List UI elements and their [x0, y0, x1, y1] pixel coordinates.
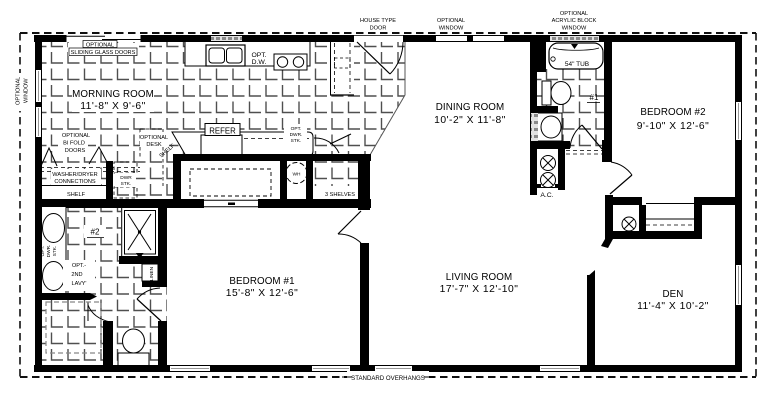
svg-text:OPT.-: OPT.- — [72, 263, 86, 269]
svg-text:LIVING ROOM: LIVING ROOM — [446, 272, 512, 283]
svg-text:10'-2" X 11'-8": 10'-2" X 11'-8" — [434, 115, 506, 126]
svg-text:WINDOW: WINDOW — [24, 78, 30, 103]
svg-text:DINING ROOM: DINING ROOM — [436, 102, 505, 113]
svg-text:WASHER/DRYER: WASHER/DRYER — [52, 172, 97, 178]
svg-text:MORNING ROOM: MORNING ROOM — [72, 89, 154, 100]
svg-text:DESK: DESK — [146, 142, 162, 148]
svg-text:SHELF: SHELF — [67, 192, 86, 198]
svg-text:WH: WH — [293, 172, 302, 178]
svg-text:OPTIONAL: OPTIONAL — [16, 77, 22, 105]
svg-text:17'-7" X 12'-10": 17'-7" X 12'-10" — [440, 284, 519, 295]
svg-text:CONNECTIONS: CONNECTIONS — [54, 179, 96, 185]
svg-text:LINEN: LINEN — [149, 266, 155, 281]
svg-text:WINDOW: WINDOW — [439, 26, 464, 32]
svg-text:#1: #1 — [590, 93, 599, 102]
svg-text:WINDOW: WINDOW — [562, 26, 587, 32]
svg-text:DOOR: DOOR — [370, 26, 387, 32]
svg-text:#2: #2 — [91, 228, 100, 237]
svg-text:15'-8" X 12'-6": 15'-8" X 12'-6" — [226, 288, 299, 299]
svg-text:OPTIONAL: OPTIONAL — [86, 43, 114, 49]
svg-text:OPTIONAL: OPTIONAL — [62, 133, 90, 139]
svg-text:DOORS: DOORS — [65, 148, 86, 154]
svg-text:54" TUB: 54" TUB — [565, 61, 589, 68]
svg-text:HOUSE TYPE: HOUSE TYPE — [360, 18, 396, 24]
svg-text:BEDROOM #2: BEDROOM #2 — [640, 107, 705, 118]
svg-text:OPTIONAL: OPTIONAL — [140, 135, 168, 141]
svg-text:OPTIONAL: OPTIONAL — [560, 11, 588, 17]
svg-text:11'-8" X 9'-6": 11'-8" X 9'-6" — [80, 101, 146, 112]
svg-text:OPT.: OPT. — [251, 52, 266, 59]
svg-text:A.C.: A.C. — [540, 192, 553, 199]
svg-text:11'-4" X 10'-2": 11'-4" X 10'-2" — [637, 301, 709, 312]
svg-text:DWR: DWR — [120, 175, 132, 181]
svg-text:DEN: DEN — [663, 289, 684, 300]
svg-text:SLIDING GLASS DOORS: SLIDING GLASS DOORS — [71, 50, 136, 56]
svg-text:BI FOLD: BI FOLD — [63, 141, 85, 147]
svg-text:D.W.: D.W. — [252, 59, 267, 66]
svg-text:3 SHELVES: 3 SHELVES — [325, 192, 355, 198]
svg-text:OPTIONAL: OPTIONAL — [437, 18, 465, 24]
svg-text:2ND: 2ND — [71, 272, 82, 278]
svg-text:OPT.DWR.STK.: OPT.DWR.STK. — [40, 245, 58, 258]
svg-text:9'-10" X 12'-6": 9'-10" X 12'-6" — [637, 121, 710, 132]
svg-text:ACRYLIC BLOCK: ACRYLIC BLOCK — [552, 18, 597, 24]
svg-text:LAVY': LAVY' — [72, 281, 87, 287]
svg-text:OPT.: OPT. — [291, 126, 302, 132]
svg-text:REFER: REFER — [209, 127, 236, 136]
svg-text:BEDROOM #1: BEDROOM #1 — [229, 276, 294, 287]
svg-text:STK.: STK. — [121, 181, 132, 187]
svg-text:STK.: STK. — [291, 138, 302, 144]
svg-text:DWR.: DWR. — [290, 132, 303, 138]
svg-text:STANDARD OVERHANGS: STANDARD OVERHANGS — [351, 375, 425, 382]
